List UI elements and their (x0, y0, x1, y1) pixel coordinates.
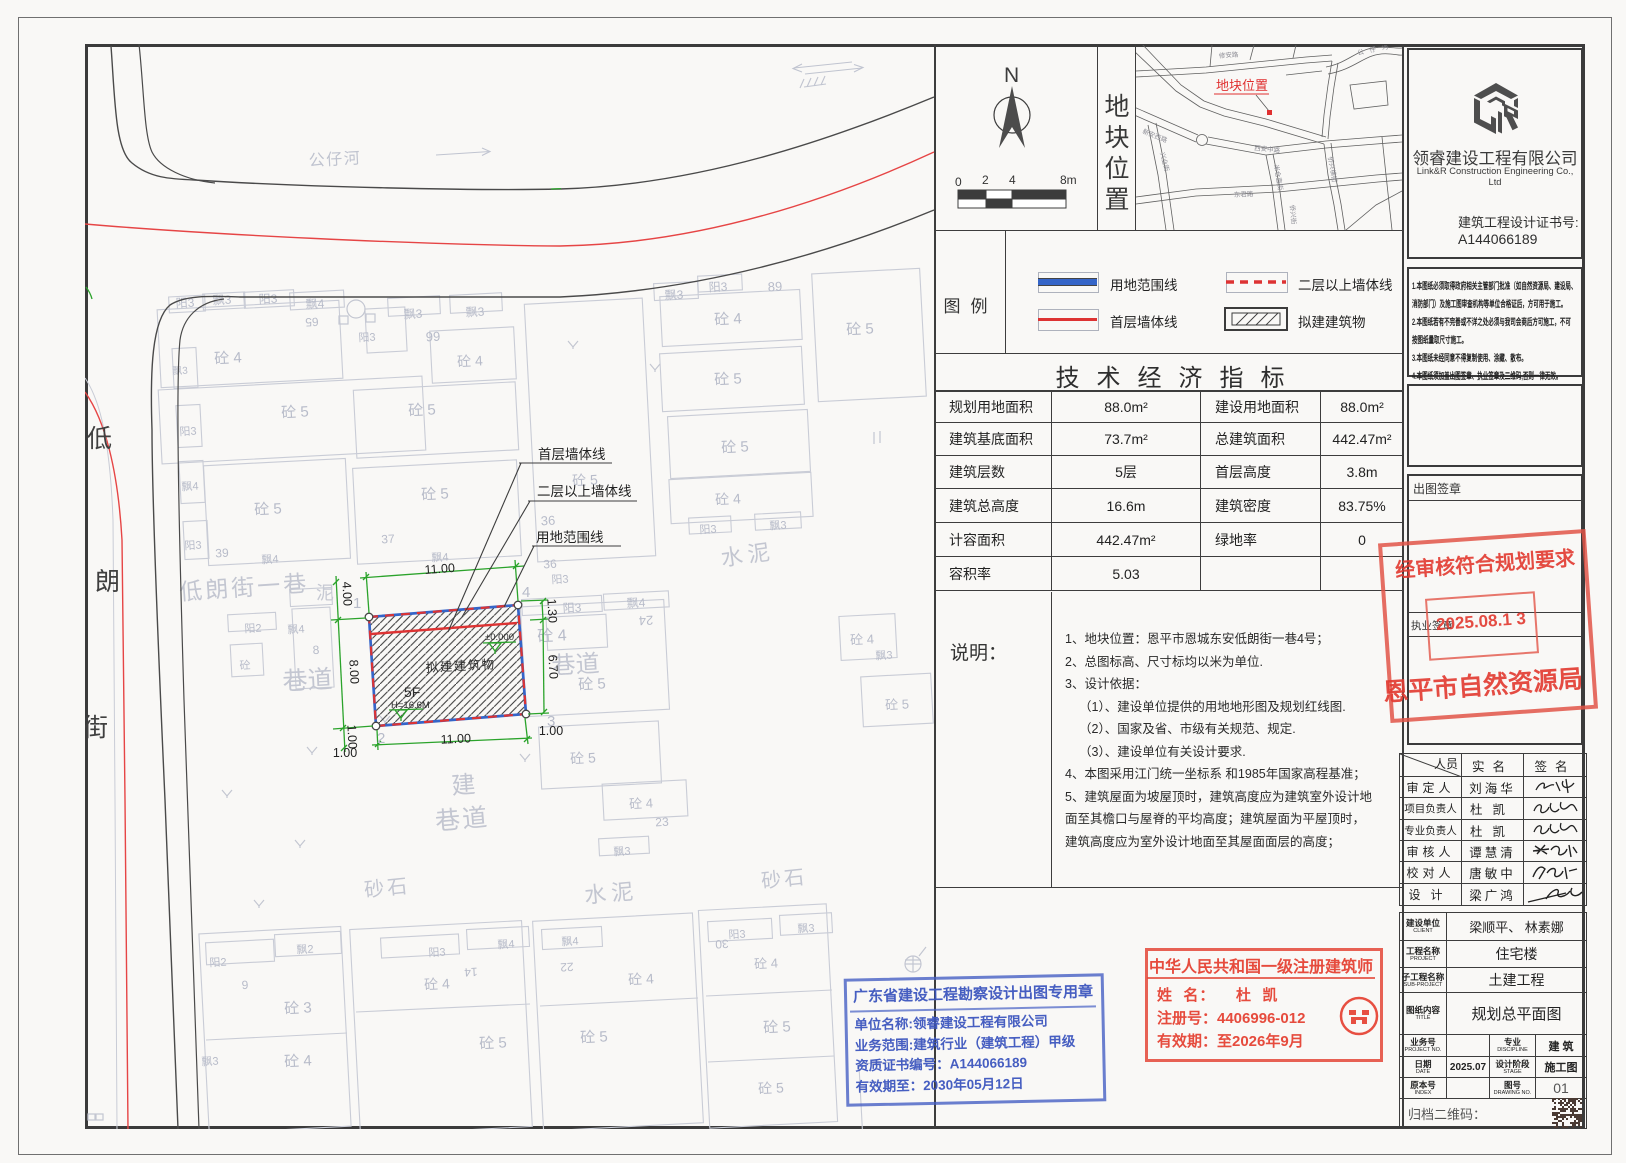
svg-text:飘3: 飘3 (875, 649, 893, 663)
svg-text:砼 5: 砼 5 (758, 1079, 785, 1096)
svg-text:西安中路: 西安中路 (1254, 143, 1281, 155)
svg-text:米仓直街: 米仓直街 (1272, 164, 1285, 192)
svg-text:11.00: 11.00 (440, 731, 471, 747)
svg-text:建: 建 (451, 771, 477, 800)
svg-text:砼 4: 砼 4 (424, 975, 451, 992)
svg-text:飘4: 飘4 (181, 480, 199, 494)
svg-text:巷道: 巷道 (434, 803, 490, 836)
svg-text:0: 0 (955, 175, 962, 189)
svg-text:14: 14 (464, 965, 478, 980)
svg-text:砼 5: 砼 5 (580, 1028, 608, 1046)
svg-text:阳2: 阳2 (244, 622, 262, 636)
svg-text:修安路: 修安路 (1219, 50, 1240, 60)
svg-text:飘4: 飘4 (287, 623, 305, 637)
svg-text:阳3: 阳3 (258, 292, 278, 307)
svg-text:89: 89 (767, 279, 782, 295)
svg-text:砼 5: 砼 5 (721, 438, 749, 456)
svg-text:砼 5: 砼 5 (479, 1034, 507, 1052)
svg-text:低: 低 (87, 425, 112, 453)
svg-text:砼 5: 砼 5 (885, 696, 910, 712)
svg-text:侨兴横街: 侨兴横街 (1326, 156, 1339, 184)
svg-text:飘4: 飘4 (261, 553, 279, 567)
svg-text:23: 23 (655, 815, 669, 830)
svg-text:N: N (1004, 64, 1019, 87)
svg-text:砼 4: 砼 4 (715, 490, 742, 507)
svg-text:飘3: 飘3 (465, 305, 485, 320)
svg-text:阳3: 阳3 (699, 523, 717, 537)
svg-text:阳3: 阳3 (708, 280, 728, 295)
svg-text:8m: 8m (1060, 173, 1077, 187)
svg-text:1.30: 1.30 (544, 598, 559, 623)
svg-text:地块位置: 地块位置 (1216, 78, 1268, 93)
svg-text:22: 22 (560, 960, 574, 975)
svg-text:4: 4 (1009, 173, 1016, 187)
svg-text:砼 4: 砼 4 (537, 626, 567, 646)
svg-text:飘3: 飘3 (613, 845, 631, 859)
svg-text:砼: 砼 (239, 659, 251, 673)
svg-text:砼 5: 砼 5 (846, 320, 874, 338)
svg-text:2: 2 (377, 730, 385, 747)
svg-text:砼 5: 砼 5 (421, 485, 449, 503)
svg-text:阳2: 阳2 (209, 956, 227, 970)
svg-text:新安西路: 新安西路 (1141, 127, 1169, 145)
svg-text:砼 4: 砼 4 (457, 352, 484, 369)
svg-text:砼 4: 砼 4 (714, 310, 742, 328)
svg-text:二层以上墙体线: 二层以上墙体线 (537, 484, 632, 499)
svg-text:37: 37 (381, 532, 395, 547)
svg-text:飘3: 飘3 (769, 519, 787, 533)
svg-text:砼 4: 砼 4 (629, 795, 654, 811)
svg-text:8: 8 (312, 643, 320, 657)
svg-text:兴业街: 兴业街 (1158, 151, 1172, 173)
svg-text:阳3: 阳3 (428, 946, 446, 960)
svg-text:飘3: 飘3 (664, 288, 684, 303)
svg-text:阳3: 阳3 (562, 601, 582, 616)
svg-text:30: 30 (715, 937, 729, 952)
svg-text:砼 4: 砼 4 (284, 1052, 312, 1070)
svg-text:公仔河: 公仔河 (308, 149, 361, 170)
svg-text:飘3: 飘3 (201, 1055, 219, 1069)
svg-text:阳3: 阳3 (179, 425, 197, 439)
svg-text:39: 39 (215, 546, 229, 561)
svg-text:泥: 泥 (316, 583, 334, 603)
svg-text:8.00: 8.00 (346, 659, 361, 684)
svg-text:飘3: 飘3 (172, 365, 189, 378)
svg-text:飘3: 飘3 (797, 922, 815, 936)
svg-text:用地范围线: 用地范围线 (536, 530, 604, 545)
svg-text:砼 5: 砼 5 (254, 500, 282, 518)
svg-text:阳3: 阳3 (358, 331, 376, 345)
svg-text:砼 4: 砼 4 (754, 955, 779, 971)
svg-text:砼 5: 砼 5 (408, 401, 436, 419)
svg-text:99: 99 (425, 329, 440, 345)
svg-text:砂石: 砂石 (363, 874, 411, 902)
svg-text:阳3: 阳3 (728, 928, 746, 942)
svg-text:3: 3 (547, 713, 555, 730)
svg-text:2: 2 (982, 173, 989, 187)
svg-text:砼 4: 砼 4 (214, 349, 242, 367)
svg-text:飘4: 飘4 (305, 297, 325, 312)
svg-text:飘4: 飘4 (626, 596, 646, 611)
svg-text:砂石: 砂石 (760, 865, 808, 893)
svg-text:9: 9 (241, 978, 249, 992)
svg-text:水泥: 水泥 (583, 878, 639, 908)
svg-text:36: 36 (543, 557, 557, 572)
svg-text:1: 1 (353, 595, 361, 612)
svg-text:砼 4: 砼 4 (628, 970, 655, 987)
svg-text:飘4: 飘4 (561, 935, 579, 949)
svg-text:阳3: 阳3 (551, 573, 569, 587)
svg-text:36: 36 (540, 513, 555, 529)
svg-text:飘2: 飘2 (296, 943, 314, 957)
svg-text:11.00: 11.00 (424, 561, 455, 577)
svg-text:侨兴街: 侨兴街 (1288, 204, 1299, 225)
svg-text:飘3: 飘3 (403, 307, 423, 322)
svg-text:砼 3: 砼 3 (284, 999, 312, 1017)
svg-text:砼 5: 砼 5 (281, 403, 309, 421)
svg-text:砼 5: 砼 5 (714, 370, 742, 388)
svg-text:砼 5: 砼 5 (763, 1018, 791, 1036)
svg-text:4: 4 (522, 584, 530, 601)
svg-text:砼 5: 砼 5 (570, 749, 597, 766)
svg-text:±0.000: ±0.000 (485, 632, 514, 643)
svg-text:24: 24 (638, 613, 653, 629)
svg-text:巷道: 巷道 (282, 665, 333, 696)
svg-text:朗: 朗 (95, 568, 120, 596)
svg-text:东君路: 东君路 (1234, 189, 1254, 199)
svg-text:65: 65 (305, 315, 319, 330)
svg-text:街: 街 (85, 714, 108, 742)
svg-text:5F: 5F (404, 684, 420, 700)
svg-text:1.00: 1.00 (333, 746, 357, 760)
svg-text:6.70: 6.70 (545, 654, 560, 679)
svg-text:阳3: 阳3 (184, 539, 202, 553)
svg-text:飘4: 飘4 (497, 938, 515, 952)
svg-text:首层墙体线: 首层墙体线 (538, 447, 606, 462)
svg-text:砼 4: 砼 4 (850, 631, 875, 647)
svg-text:水泥: 水泥 (719, 539, 776, 571)
